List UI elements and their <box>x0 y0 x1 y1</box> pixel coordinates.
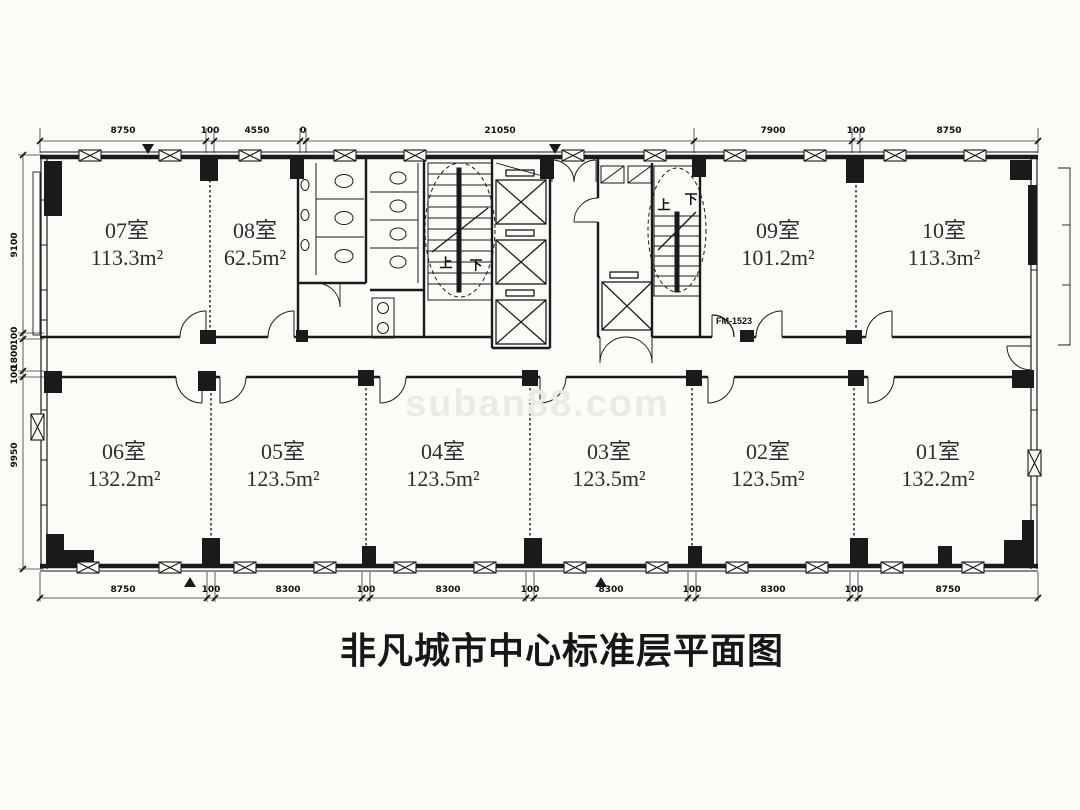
dim-bottom-8: 100 <box>683 585 702 595</box>
elevator-icons <box>496 163 546 344</box>
dim-bottom-10: 100 <box>845 585 864 595</box>
room-09-number: 09室 <box>741 219 814 243</box>
elevator-icon-2 <box>602 272 652 330</box>
lobby-doors <box>552 160 596 182</box>
dim-top-7: 100 <box>847 126 866 136</box>
room-08-area: 62.5m² <box>224 243 286 273</box>
room-03: 03室 123.5m² <box>572 440 645 494</box>
room-10-area: 113.3m² <box>908 243 980 273</box>
room-02-number: 02室 <box>731 440 804 464</box>
dimension-lines <box>18 128 1038 602</box>
room-08: 08室 62.5m² <box>224 219 286 273</box>
dim-bottom-1: 8750 <box>110 585 135 595</box>
plan-title: 非凡城市中心标准层平面图 <box>340 622 784 674</box>
stair-icon <box>425 163 495 300</box>
dim-top-2: 100 <box>201 126 220 136</box>
room-01: 01室 132.2m² <box>901 440 974 494</box>
dim-left-1: 9100 <box>10 232 20 257</box>
room-06-area: 132.2m² <box>87 464 160 494</box>
dim-bottom-4: 100 <box>357 585 376 595</box>
dim-top-5: 21050 <box>484 126 515 136</box>
room-05-area: 123.5m² <box>246 464 319 494</box>
room-04-area: 123.5m² <box>406 464 479 494</box>
dim-bottom-3: 8300 <box>275 585 300 595</box>
room-07-number: 07室 <box>91 219 163 243</box>
room-06: 06室 132.2m² <box>87 440 160 494</box>
room-05: 05室 123.5m² <box>246 440 319 494</box>
dim-top-4: 0 <box>300 126 306 136</box>
dim-top-1: 8750 <box>110 126 135 136</box>
entry-markers <box>142 144 607 587</box>
dim-bottom-6: 100 <box>521 585 540 595</box>
room-08-number: 08室 <box>224 219 286 243</box>
dim-bottom-2: 100 <box>202 585 221 595</box>
machine-room-door <box>574 198 598 222</box>
room-09: 09室 101.2m² <box>741 219 814 273</box>
room-03-area: 123.5m² <box>572 464 645 494</box>
stair1-up-label: 上 <box>439 253 452 272</box>
dimension-ticks <box>20 138 1041 601</box>
room-02: 02室 123.5m² <box>731 440 804 494</box>
stair-icon-2 <box>648 166 706 296</box>
window-icons <box>31 150 1041 573</box>
room-01-number: 01室 <box>901 440 974 464</box>
stair2-up-label: 上 <box>657 195 670 214</box>
floor-plan-page: suban88.com <box>0 0 1080 810</box>
toilet-fixtures <box>301 163 418 338</box>
columns <box>44 159 1037 566</box>
watermark: suban88.com <box>405 383 705 426</box>
room-07: 07室 113.3m² <box>91 219 163 273</box>
core-walls <box>298 159 700 348</box>
room-05-number: 05室 <box>246 440 319 464</box>
corridor-wall-upper <box>40 337 1031 348</box>
stair1-down-label: 下 <box>469 255 482 274</box>
dim-left-2: 100 <box>10 327 20 346</box>
exterior-walls <box>33 152 1070 571</box>
fire-door-label: FM-1523 <box>716 316 752 326</box>
room-09-area: 101.2m² <box>741 243 814 273</box>
dim-top-6: 7900 <box>760 126 785 136</box>
dim-left-4: 100 <box>10 366 20 385</box>
dim-top-3: 4550 <box>244 126 269 136</box>
stair2-down-label: 下 <box>684 189 697 208</box>
room-02-area: 123.5m² <box>731 464 804 494</box>
dim-bottom-7: 8300 <box>598 585 623 595</box>
room-07-area: 113.3m² <box>91 243 163 273</box>
room-06-number: 06室 <box>87 440 160 464</box>
room-04: 04室 123.5m² <box>406 440 479 494</box>
room-04-number: 04室 <box>406 440 479 464</box>
dim-left-5: 9950 <box>10 442 20 467</box>
dim-bottom-11: 8750 <box>935 585 960 595</box>
room-10: 10室 113.3m² <box>908 219 980 273</box>
room-03-number: 03室 <box>572 440 645 464</box>
dim-bottom-5: 8300 <box>435 585 460 595</box>
room-01-area: 132.2m² <box>901 464 974 494</box>
room-10-number: 10室 <box>908 219 980 243</box>
vent-shafts <box>601 166 651 183</box>
dim-top-8: 8750 <box>936 126 961 136</box>
dim-bottom-9: 8300 <box>760 585 785 595</box>
